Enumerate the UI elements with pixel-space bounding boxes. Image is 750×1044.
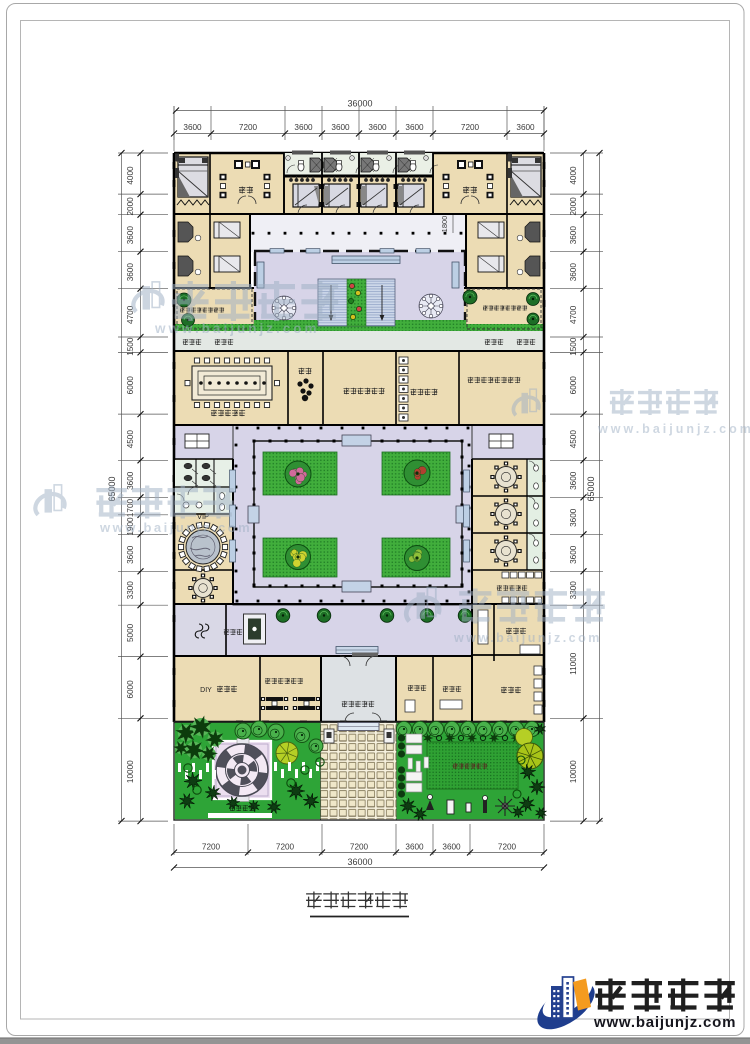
svg-text:10000: 10000	[569, 760, 578, 783]
svg-text:3600: 3600	[331, 123, 350, 132]
svg-text:3600: 3600	[126, 226, 135, 245]
svg-text:4000: 4000	[126, 166, 135, 185]
svg-text:3600: 3600	[126, 545, 135, 564]
svg-text:7200: 7200	[498, 843, 517, 852]
svg-text:3600: 3600	[442, 843, 461, 852]
svg-text:11000: 11000	[569, 652, 578, 675]
svg-text:3600: 3600	[126, 263, 135, 282]
svg-text:3600: 3600	[569, 226, 578, 245]
svg-text:3600: 3600	[569, 545, 578, 564]
svg-text:7200: 7200	[461, 123, 480, 132]
svg-text:1500: 1500	[569, 337, 578, 356]
svg-text:3600: 3600	[294, 123, 313, 132]
svg-text:www.baijunjz.com: www.baijunjz.com	[597, 422, 750, 436]
svg-text:3600: 3600	[405, 123, 424, 132]
svg-text:7200: 7200	[350, 843, 369, 852]
svg-text:3600: 3600	[569, 471, 578, 490]
svg-text:6000: 6000	[569, 376, 578, 395]
svg-text:3600: 3600	[368, 123, 387, 132]
svg-text:3300: 3300	[569, 581, 578, 600]
svg-text:6000: 6000	[126, 680, 135, 699]
svg-text:36000: 36000	[347, 99, 372, 109]
svg-text:3300: 3300	[126, 581, 135, 600]
svg-text:3600: 3600	[126, 471, 135, 490]
svg-text:4500: 4500	[569, 430, 578, 449]
svg-text:www.baijunjz.com: www.baijunjz.com	[593, 1014, 736, 1031]
svg-text:www.baijunjz.com: www.baijunjz.com	[154, 321, 320, 336]
svg-text:7200: 7200	[276, 843, 295, 852]
svg-text:7200: 7200	[239, 123, 258, 132]
svg-text:1800: 1800	[440, 216, 449, 233]
svg-text:2000: 2000	[126, 197, 135, 216]
svg-text:1500: 1500	[126, 337, 135, 356]
svg-text:7200: 7200	[202, 843, 221, 852]
svg-text:4500: 4500	[126, 430, 135, 449]
svg-text:www.baijunjz.com: www.baijunjz.com	[453, 631, 602, 645]
svg-text:3600: 3600	[569, 263, 578, 282]
svg-text:4700: 4700	[569, 305, 578, 324]
svg-text:3600: 3600	[516, 123, 535, 132]
svg-text:5000: 5000	[126, 623, 135, 642]
svg-text:4000: 4000	[569, 166, 578, 185]
svg-text:www.baijunjz.com: www.baijunjz.com	[99, 520, 252, 535]
svg-text:DIY: DIY	[200, 687, 212, 694]
svg-text:3600: 3600	[405, 843, 424, 852]
svg-text:2000: 2000	[569, 197, 578, 216]
svg-text:36000: 36000	[347, 857, 372, 867]
svg-text:3600: 3600	[183, 123, 202, 132]
svg-text:3600: 3600	[569, 508, 578, 527]
svg-text:6000: 6000	[126, 376, 135, 395]
svg-text:10000: 10000	[126, 760, 135, 783]
svg-text:65000: 65000	[586, 476, 596, 501]
